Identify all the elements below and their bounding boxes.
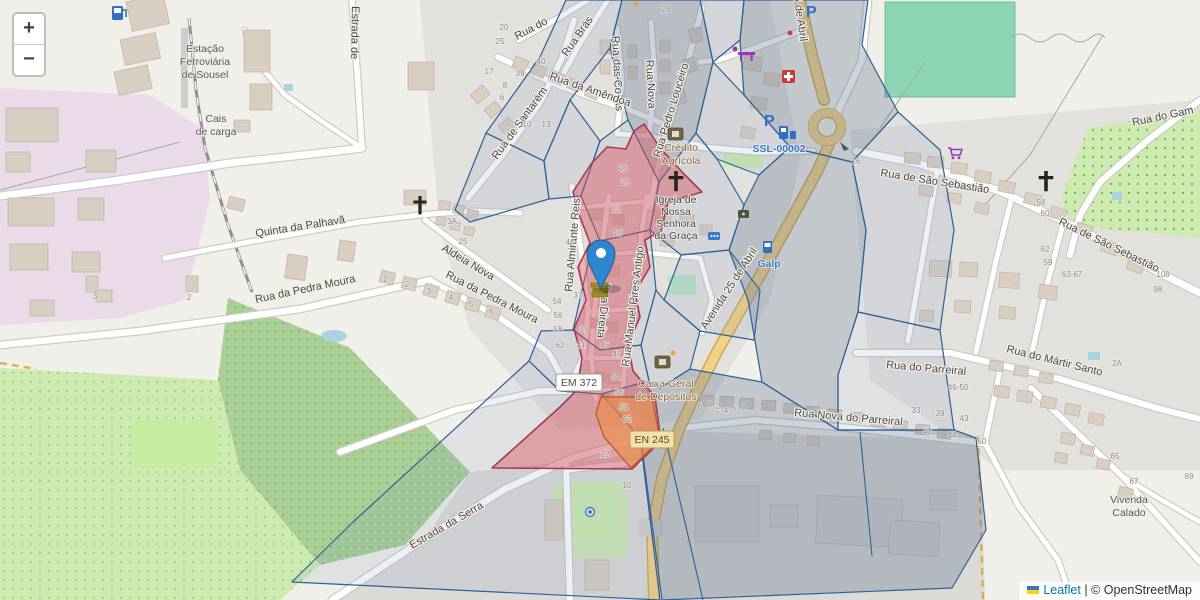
works-icon [738, 210, 749, 218]
svg-text:10: 10 [523, 120, 532, 129]
mini-roundabout-icon [634, 2, 639, 7]
map-tiles: EM 372 EN 245 Estrada de Rua do Rua Brás… [0, 0, 1200, 600]
poi-label: Galp [757, 258, 780, 270]
ukraine-flag-icon [1027, 586, 1039, 594]
street-label: Estrada de [348, 6, 361, 59]
svg-text:16: 16 [619, 164, 628, 173]
svg-text:2: 2 [187, 293, 192, 302]
svg-text:13: 13 [542, 120, 551, 129]
svg-text:40: 40 [923, 427, 932, 436]
svg-text:59: 59 [1044, 258, 1053, 267]
svg-text:10: 10 [623, 481, 632, 490]
attribution-bar: Leaflet | © OpenStreetMap [1019, 582, 1200, 600]
poi-label: Crédito [664, 142, 698, 154]
svg-text:54: 54 [612, 373, 621, 382]
svg-text:16: 16 [852, 157, 861, 166]
svg-text:20: 20 [500, 23, 509, 32]
osm-credit[interactable]: © OpenStreetMap [1091, 583, 1192, 597]
svg-text:67: 67 [1130, 477, 1139, 486]
svg-text:58: 58 [620, 403, 629, 412]
svg-text:2A: 2A [1112, 359, 1122, 368]
svg-text:17: 17 [485, 67, 494, 76]
info-icon [708, 232, 720, 240]
parking-icon: P [806, 4, 817, 21]
poi-label: Nossa [661, 206, 691, 218]
parking-icon: P [764, 113, 775, 130]
leaflet-link[interactable]: Leaflet [1043, 583, 1081, 597]
poi-label: SSL-00002 [752, 143, 805, 155]
svg-text:12: 12 [601, 450, 610, 459]
zoom-out-button[interactable]: − [14, 45, 44, 75]
svg-text:8: 8 [742, 403, 747, 412]
poi-label: de Sousel [182, 69, 229, 81]
svg-text:65: 65 [1111, 452, 1120, 461]
svg-text:56: 56 [615, 388, 624, 397]
svg-text:46-50: 46-50 [948, 383, 969, 392]
pharmacy-icon [782, 70, 795, 83]
svg-text:18: 18 [621, 178, 630, 187]
poi-label: Caixa Geral [638, 378, 693, 390]
attribution-separator: | [1084, 583, 1087, 597]
svg-text:54: 54 [553, 297, 562, 306]
svg-text:3: 3 [93, 292, 98, 301]
svg-text:47: 47 [613, 350, 622, 359]
svg-text:39: 39 [936, 409, 945, 418]
poi-label: Vivenda [1110, 494, 1148, 506]
svg-text:58: 58 [554, 325, 563, 334]
svg-text:41: 41 [577, 341, 586, 350]
poi-label: Ferroviária [180, 56, 230, 68]
svg-text:6: 6 [489, 307, 494, 316]
svg-text:15: 15 [614, 229, 623, 238]
svg-text:60: 60 [1041, 209, 1050, 218]
svg-text:39: 39 [580, 325, 589, 334]
marker-pin-hole [596, 248, 606, 258]
svg-text:40: 40 [537, 57, 546, 66]
fountain-icon [586, 508, 595, 517]
svg-text:46: 46 [601, 341, 610, 350]
shield-em372: EM 372 [561, 377, 597, 389]
svg-text:8: 8 [708, 400, 713, 409]
svg-text:3: 3 [427, 287, 432, 296]
svg-text:58: 58 [1037, 198, 1046, 207]
svg-text:28: 28 [662, 5, 671, 14]
svg-text:37: 37 [574, 291, 583, 300]
poi-label: de carga [196, 126, 237, 138]
bank-icon [655, 356, 670, 368]
svg-text:8: 8 [503, 81, 508, 90]
zoom-control: + − [12, 12, 46, 77]
traffic-signal-icon [788, 31, 793, 36]
shield-en245: EN 245 [634, 434, 669, 446]
svg-text:2: 2 [716, 402, 721, 411]
poi-label: Estação [186, 43, 224, 55]
svg-text:6: 6 [732, 404, 737, 413]
svg-text:69: 69 [1185, 472, 1194, 481]
map-canvas[interactable]: EM 372 EN 245 Estrada de Rua do Rua Brás… [0, 0, 1200, 600]
svg-text:62: 62 [623, 415, 632, 424]
svg-text:63-67: 63-67 [1062, 270, 1083, 279]
svg-text:44: 44 [566, 238, 575, 247]
svg-text:56: 56 [554, 311, 563, 320]
svg-text:25: 25 [459, 237, 468, 246]
zoom-in-button[interactable]: + [14, 14, 44, 45]
svg-text:108: 108 [1156, 270, 1170, 279]
svg-text:43: 43 [960, 414, 969, 423]
svg-text:3A: 3A [447, 217, 457, 226]
svg-text:50: 50 [978, 437, 987, 446]
svg-text:62: 62 [556, 341, 565, 350]
svg-text:33: 33 [912, 406, 921, 415]
svg-text:22: 22 [612, 205, 621, 214]
svg-text:2: 2 [405, 280, 410, 289]
poi-label: Senhora [656, 218, 696, 230]
svg-text:6: 6 [698, 402, 703, 411]
svg-text:1: 1 [383, 275, 388, 284]
poi-label: Cais [205, 113, 226, 125]
svg-text:44: 44 [948, 431, 957, 440]
svg-text:98: 98 [1154, 285, 1163, 294]
poi-label: de Depósitos [635, 391, 696, 403]
svg-text:4: 4 [724, 406, 729, 415]
svg-text:4: 4 [449, 293, 454, 302]
poi-label: da Graça [654, 230, 697, 242]
poi-label: Agrícola [662, 155, 701, 167]
svg-text:6: 6 [500, 93, 505, 102]
svg-text:39: 39 [516, 69, 525, 78]
svg-text:25: 25 [496, 37, 505, 46]
svg-text:62: 62 [1041, 245, 1050, 254]
bank-icon [668, 128, 683, 140]
mini-roundabout-icon [671, 351, 676, 356]
poi-label: Igreja de [656, 194, 697, 206]
svg-text:5: 5 [469, 300, 474, 309]
poi-label: Calado [1112, 507, 1145, 519]
galp-fuel-icon [763, 241, 772, 253]
